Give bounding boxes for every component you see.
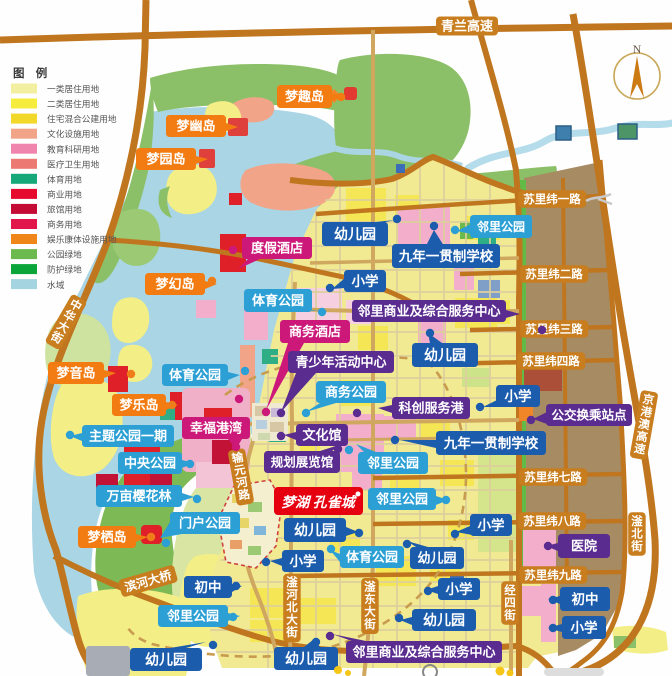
- svg-text:医院: 医院: [571, 539, 597, 554]
- svg-text:中央公园: 中央公园: [124, 456, 176, 471]
- svg-text:主题公园一期: 主题公园一期: [89, 429, 167, 444]
- svg-text:幼儿园: 幼儿园: [334, 226, 376, 242]
- svg-text:小学: 小学: [571, 619, 599, 635]
- svg-text:幼儿园: 幼儿园: [145, 652, 187, 668]
- svg-text:青兰高速: 青兰高速: [441, 19, 493, 34]
- svg-text:科创服务港: 科创服务港: [398, 401, 464, 416]
- svg-text:滏河北大街: 滏河北大街: [285, 575, 298, 639]
- svg-text:九年一贯制学校: 九年一贯制学校: [443, 435, 539, 451]
- svg-text:邻里公园: 邻里公园: [476, 219, 525, 234]
- svg-text:商务公园: 商务公园: [325, 385, 377, 400]
- svg-text:旅馆用地: 旅馆用地: [47, 204, 82, 215]
- svg-text:防护绿地: 防护绿地: [47, 264, 82, 275]
- svg-text:万亩樱花林: 万亩樱花林: [105, 489, 171, 504]
- svg-text:文化馆: 文化馆: [302, 428, 341, 443]
- svg-text:公园绿地: 公园绿地: [47, 249, 82, 260]
- svg-text:小学: 小学: [505, 388, 533, 404]
- svg-text:幼儿园: 幼儿园: [423, 612, 465, 628]
- svg-text:幼儿园: 幼儿园: [285, 651, 327, 667]
- svg-text:九年一贯制学校: 九年一贯制学校: [398, 248, 494, 264]
- svg-text:门户公园: 门户公园: [179, 516, 231, 531]
- svg-text:住宅混合公建用地: 住宅混合公建用地: [47, 113, 117, 124]
- svg-text:体育公园: 体育公园: [169, 368, 221, 383]
- svg-text:梦湖 孔雀城: 梦湖 孔雀城: [281, 494, 357, 511]
- svg-text:幼儿园: 幼儿园: [424, 347, 466, 363]
- svg-text:苏里纬二路: 苏里纬二路: [525, 267, 583, 281]
- svg-text:苏里纬七路: 苏里纬七路: [524, 470, 582, 484]
- svg-text:梦园岛: 梦园岛: [146, 152, 185, 167]
- svg-text:商务用地: 商务用地: [47, 219, 82, 230]
- svg-text:水域: 水域: [47, 279, 65, 290]
- svg-text:经四街: 经四街: [503, 583, 516, 622]
- svg-text:二类居住用地: 二类居住用地: [47, 98, 99, 109]
- svg-text:梦音岛: 梦音岛: [56, 366, 95, 381]
- svg-text:梦栖岛: 梦栖岛: [87, 530, 126, 545]
- svg-text:一类居住用地: 一类居住用地: [47, 83, 99, 94]
- svg-text:苏里纬九路: 苏里纬九路: [524, 568, 582, 582]
- svg-text:苏里纬一路: 苏里纬一路: [523, 192, 581, 206]
- svg-text:邻里商业及综合服务中心: 邻里商业及综合服务中心: [351, 645, 495, 660]
- svg-text:邻里商业及综合服务中心: 邻里商业及综合服务中心: [356, 304, 500, 319]
- svg-text:小学: 小学: [290, 553, 317, 569]
- svg-text:体育公园: 体育公园: [346, 550, 398, 565]
- svg-text:苏里纬四路: 苏里纬四路: [522, 354, 580, 368]
- svg-text:小学: 小学: [352, 273, 379, 289]
- svg-text:苏里纬三路: 苏里纬三路: [525, 322, 583, 336]
- svg-text:医疗卫生用地: 医疗卫生用地: [47, 158, 99, 169]
- svg-text:小学: 小学: [478, 517, 505, 533]
- svg-text:青少年活动中心: 青少年活动中心: [295, 355, 386, 370]
- svg-text:教育科研用地: 教育科研用地: [47, 143, 99, 154]
- svg-text:商业用地: 商业用地: [47, 189, 82, 200]
- svg-text:苏里纬八路: 苏里纬八路: [523, 514, 581, 528]
- svg-text:幼儿园: 幼儿园: [294, 522, 336, 538]
- svg-text:公交换乘站点: 公交换乘站点: [551, 408, 627, 423]
- svg-text:初中: 初中: [572, 591, 599, 607]
- svg-text:体育公园: 体育公园: [252, 293, 304, 308]
- svg-text:初中: 初中: [195, 579, 222, 595]
- svg-text:幸福港湾: 幸福港湾: [190, 421, 242, 436]
- svg-text:梦乐岛: 梦乐岛: [119, 398, 158, 413]
- svg-text:娱乐康体设施用地: 娱乐康体设施用地: [47, 234, 117, 245]
- svg-text:N: N: [633, 42, 642, 56]
- svg-text:幼儿园: 幼儿园: [417, 551, 456, 566]
- svg-text:度假酒店: 度假酒店: [251, 241, 303, 256]
- svg-text:图 例: 图 例: [13, 66, 51, 80]
- svg-text:文化设施用地: 文化设施用地: [47, 128, 99, 139]
- svg-text:梦幽岛: 梦幽岛: [176, 119, 215, 134]
- svg-text:小学: 小学: [446, 581, 473, 597]
- svg-text:滏东大街: 滏东大街: [363, 580, 376, 632]
- svg-text:滏北街: 滏北街: [630, 514, 643, 553]
- svg-text:规划展览馆: 规划展览馆: [271, 455, 334, 470]
- svg-text:梦幻岛: 梦幻岛: [155, 277, 194, 292]
- svg-text:商务酒店: 商务酒店: [289, 324, 341, 339]
- svg-text:邻里公园: 邻里公园: [166, 609, 219, 624]
- svg-text:体育用地: 体育用地: [47, 173, 82, 184]
- svg-text:梦趣岛: 梦趣岛: [285, 89, 324, 104]
- svg-text:邻里公园: 邻里公园: [375, 492, 428, 507]
- svg-text:邻里公园: 邻里公园: [366, 456, 419, 471]
